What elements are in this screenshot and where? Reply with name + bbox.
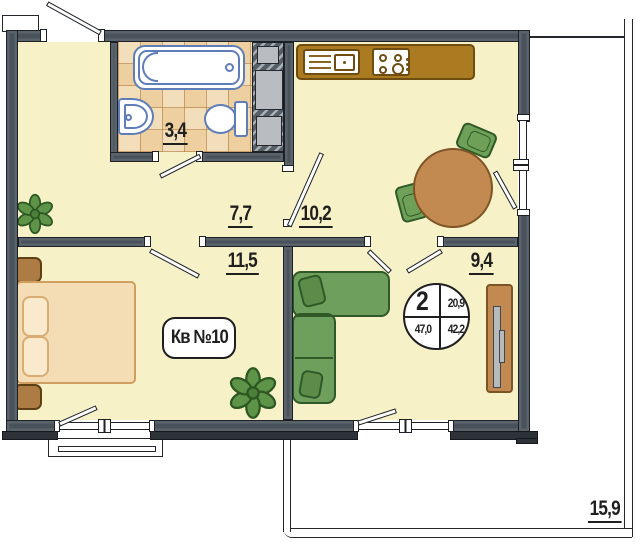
entrance-door-leaf xyxy=(46,1,102,35)
chair-cushion xyxy=(465,129,492,153)
terrace-right-rail xyxy=(624,19,633,537)
burner-small xyxy=(394,54,402,62)
vent-duct xyxy=(255,70,283,110)
wall-interior-living-top xyxy=(442,237,518,247)
living-area-label: 9,4 xyxy=(469,250,494,275)
door-jamb xyxy=(517,114,530,121)
window-jamb xyxy=(149,420,155,432)
apartment-number-badge: Кв №10 xyxy=(162,317,236,359)
wall-kitchen-left xyxy=(284,42,294,166)
door-jamb xyxy=(517,209,530,216)
bathtub xyxy=(133,45,245,90)
plant-icon xyxy=(14,193,56,235)
sofa-cushion-divider xyxy=(295,315,333,317)
bedroom-balcony-railing xyxy=(58,446,156,452)
wall-outer-band xyxy=(2,431,58,440)
wall-bathroom-left xyxy=(110,42,118,162)
bathroom-area-label: 3,4 xyxy=(163,120,188,145)
apartment-number-text: Кв №10 xyxy=(170,327,227,349)
bathtub-drain xyxy=(225,63,234,72)
door-jamb xyxy=(152,151,159,162)
kitchen-sink-unit xyxy=(303,49,360,75)
window-jamb xyxy=(448,420,454,432)
wall-outer-corner xyxy=(516,438,538,444)
wall-right-living xyxy=(518,210,530,432)
sofa-cushion-divider xyxy=(295,357,333,359)
stove-icon xyxy=(372,48,410,76)
door-jamb xyxy=(282,165,294,172)
wall-bathroom-bottom-right xyxy=(202,152,284,162)
kitchen-area-label: 10,2 xyxy=(299,203,333,228)
stamp-living-area: 20,9 xyxy=(443,291,469,315)
wardrobe-sliding-door xyxy=(499,330,505,363)
vent-duct xyxy=(256,116,282,146)
kitchen-sink-drain-dot xyxy=(343,61,346,64)
terrace-top-line xyxy=(530,36,626,38)
wall-bathroom-bottom-left xyxy=(110,152,158,162)
door-jamb xyxy=(144,236,151,247)
bed-pillow xyxy=(22,336,49,377)
door-jamb xyxy=(199,236,206,247)
burner-small xyxy=(379,54,387,62)
stove-knob xyxy=(406,58,409,61)
window-mullion xyxy=(98,419,111,433)
door-jamb xyxy=(40,29,47,42)
stove-knob xyxy=(406,63,409,66)
bedroom-area-label: 11,5 xyxy=(226,250,259,275)
stamp-total-area: 47,0 xyxy=(409,318,436,340)
wall-interior-bedroom-top xyxy=(18,237,146,247)
door-jamb xyxy=(364,236,371,247)
window-mullion xyxy=(513,159,529,171)
window-mullion xyxy=(399,419,412,433)
wall-outer-band xyxy=(150,431,358,440)
wall-right-kitchen xyxy=(518,30,530,122)
wall-interior-vertical xyxy=(283,246,293,420)
wall-top-main xyxy=(101,30,530,42)
bed-pillow xyxy=(22,296,49,337)
kitchen-drainboard xyxy=(309,55,331,70)
toilet-tank xyxy=(234,101,248,137)
door-jamb xyxy=(437,236,444,247)
wall-left xyxy=(6,30,18,432)
bathroom-sink-drain xyxy=(125,114,132,121)
terrace-left-rail xyxy=(283,440,291,532)
hallway-area-label: 7,7 xyxy=(228,203,253,228)
dining-table xyxy=(413,148,493,228)
floor-plan: 3,4 7,7 10,2 11,5 9,4 15,9 Кв №10 2 20,9… xyxy=(0,0,636,542)
burner-large xyxy=(392,63,404,75)
plant-icon xyxy=(226,366,280,420)
terrace-bottom-rail xyxy=(284,528,632,538)
burner-small xyxy=(379,66,387,74)
stove-knob xyxy=(406,68,409,71)
stamp-reduced-area: 42,2 xyxy=(443,318,469,340)
stamp-rooms-count: 2 xyxy=(408,286,437,316)
terrace-area-label: 15,9 xyxy=(588,498,622,523)
vent-duct xyxy=(257,46,279,64)
toilet-bowl xyxy=(204,104,237,134)
apartment-stamp: 2 20,9 47,0 42,2 xyxy=(403,283,470,350)
